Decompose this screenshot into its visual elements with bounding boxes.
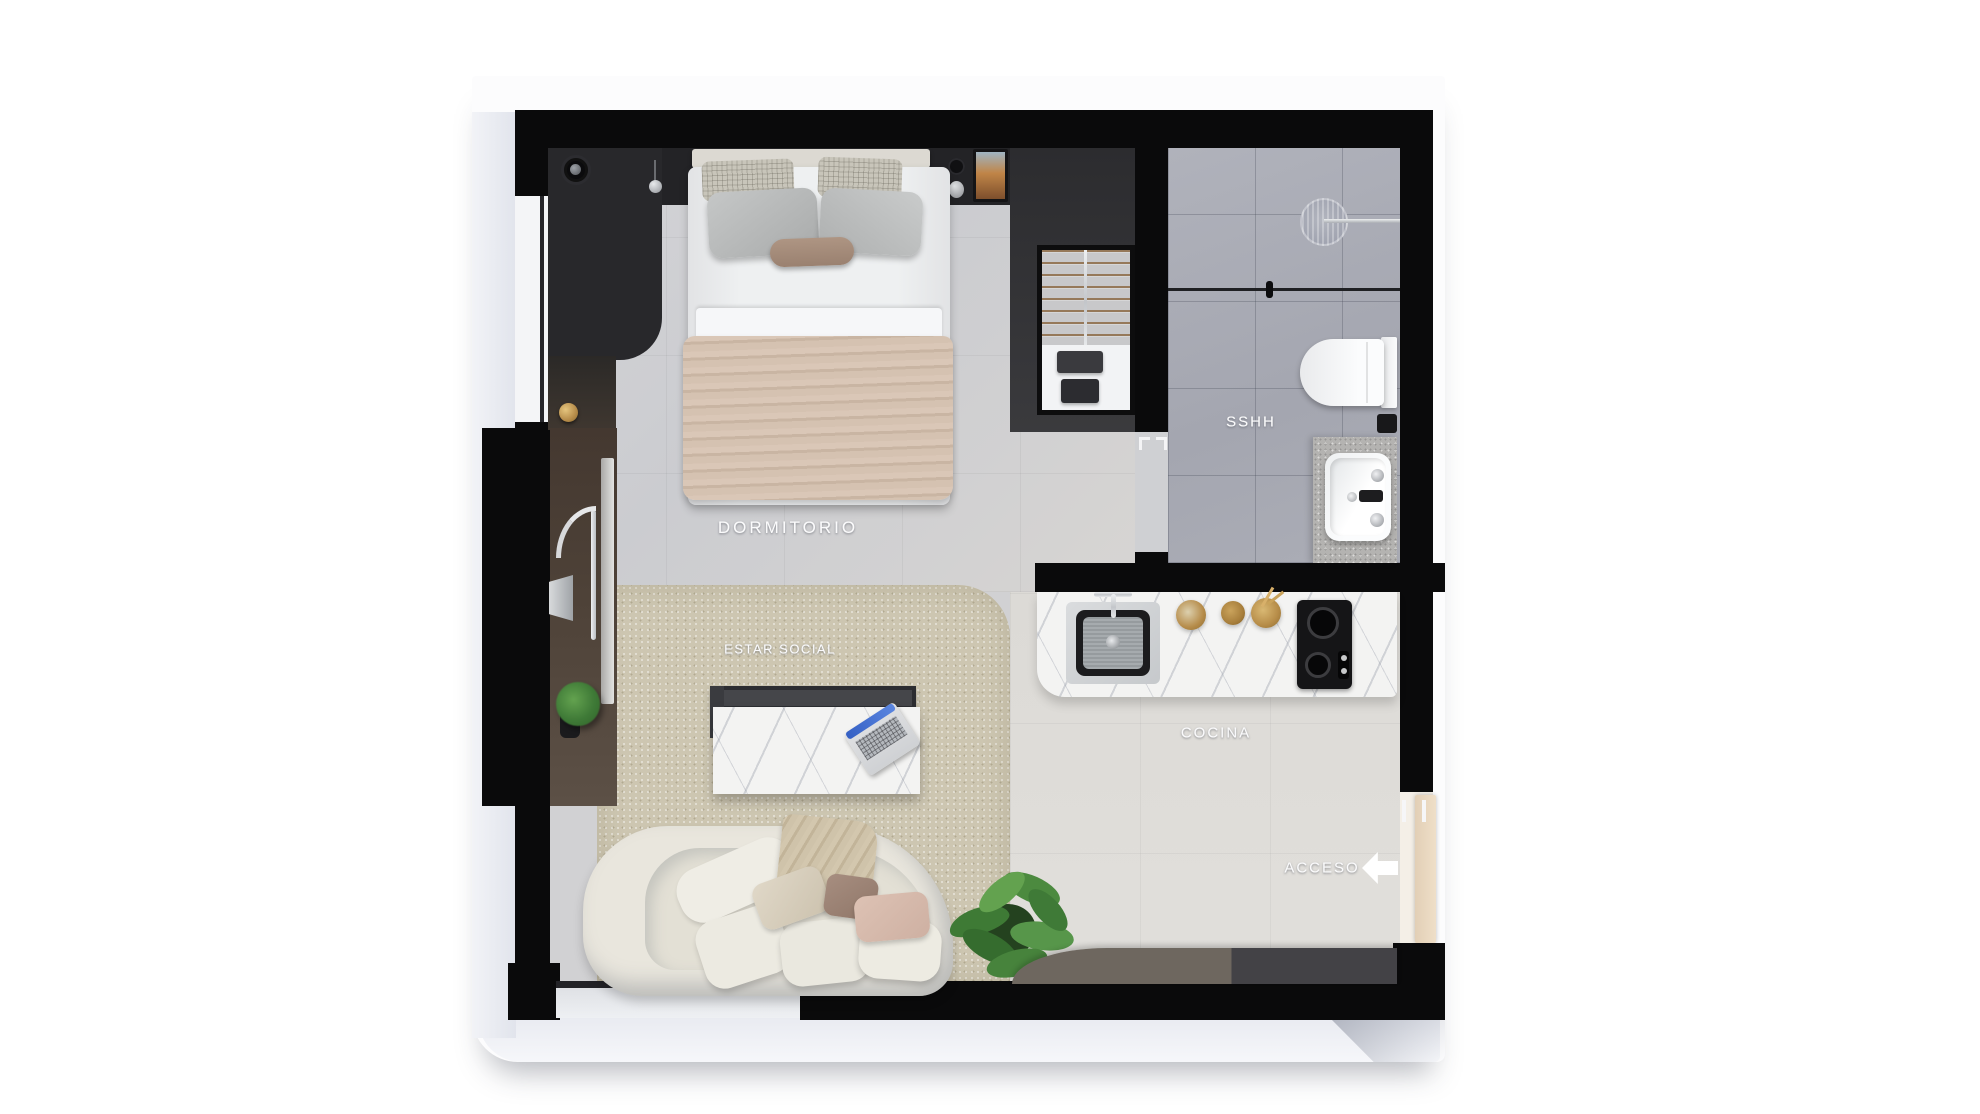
wall-left-upper xyxy=(515,110,550,190)
bed-blanket xyxy=(683,336,953,500)
floor-lamp-base xyxy=(549,575,573,621)
bathroom-doorway-floor xyxy=(1135,432,1168,552)
folded-clothes-1 xyxy=(1057,351,1103,373)
bathroom-door-frame-mark-2 xyxy=(1156,437,1167,450)
cooktop-burner-1 xyxy=(1307,607,1339,639)
ceiling-lamp-lens xyxy=(570,164,581,175)
wall-art-frame xyxy=(973,149,1008,202)
cooktop-burner-2 xyxy=(1305,652,1331,678)
sofa xyxy=(583,818,958,998)
wall-bathroom-left xyxy=(1135,148,1168,432)
wall-sconce-icon xyxy=(948,158,965,175)
entry-door-frame-mark-1 xyxy=(1402,800,1406,822)
entrance-label: ACCESO xyxy=(1284,860,1359,877)
wall-kitchen-back xyxy=(1035,563,1445,592)
wall-sconce-globe xyxy=(949,181,964,198)
toilet-bowl xyxy=(1300,339,1384,406)
closet xyxy=(1037,245,1135,415)
dressing-mirror xyxy=(601,458,614,704)
shower-arm xyxy=(1324,219,1400,223)
cooktop-knob-1 xyxy=(1341,655,1347,661)
kitchen-label: COCINA xyxy=(1181,725,1251,742)
wall-left-lower xyxy=(515,806,550,986)
bathroom-door-frame-mark-1 xyxy=(1139,437,1150,450)
living-label: ESTAR SOCIAL xyxy=(724,642,836,657)
shelf-plant xyxy=(556,682,600,726)
kitchen-sink-drain-icon xyxy=(1106,635,1120,649)
cooktop xyxy=(1297,600,1352,689)
wall-left-mid xyxy=(482,428,550,806)
bathroom-label: SSHH xyxy=(1226,414,1276,431)
toilet-paper-holder-icon xyxy=(1377,414,1397,433)
shower-glass-divider xyxy=(1168,288,1400,291)
bathroom-sink-drain-icon xyxy=(1347,492,1357,502)
wall-corner-bottom-right xyxy=(1393,943,1445,1020)
closet-rail xyxy=(1084,250,1087,345)
bathroom-faucet-slot xyxy=(1359,490,1383,502)
kitchen-faucet-spout xyxy=(1111,594,1116,618)
entry-door-frame-mark-2 xyxy=(1422,800,1426,822)
cooktop-knob-2 xyxy=(1341,668,1347,674)
wall-top xyxy=(515,110,1433,148)
entry-lowboard xyxy=(1012,948,1397,984)
folded-clothes-2 xyxy=(1061,379,1099,403)
window-left-glass-line xyxy=(540,196,544,422)
pendant-lamp-icon xyxy=(654,160,656,182)
kitchen-jar-2 xyxy=(1221,601,1245,625)
floorplan-page: DORMITORIO ESTAR SOCIAL SSHH COCINA ACCE… xyxy=(0,0,1980,1114)
wall-corner-bottom-left xyxy=(508,963,560,1020)
bathroom-sink xyxy=(1325,453,1391,541)
headboard-panel-fade xyxy=(548,356,616,430)
platform-bottom-face xyxy=(478,1018,1440,1062)
bed-bolster-cushion xyxy=(770,237,855,268)
bathroom-sink-knob-1 xyxy=(1371,469,1384,482)
gold-knob-icon xyxy=(559,403,578,422)
sofa-pillow-pink xyxy=(853,891,931,943)
wall-right xyxy=(1400,110,1433,792)
shower-door-handle-icon xyxy=(1266,281,1273,298)
toilet-seat-line xyxy=(1366,342,1368,403)
kitchen-jar-1 xyxy=(1176,600,1206,630)
pendant-lamp-shade xyxy=(649,180,662,193)
bathroom-sink-knob-2 xyxy=(1370,513,1384,527)
bedroom-label: DORMITORIO xyxy=(718,518,858,538)
